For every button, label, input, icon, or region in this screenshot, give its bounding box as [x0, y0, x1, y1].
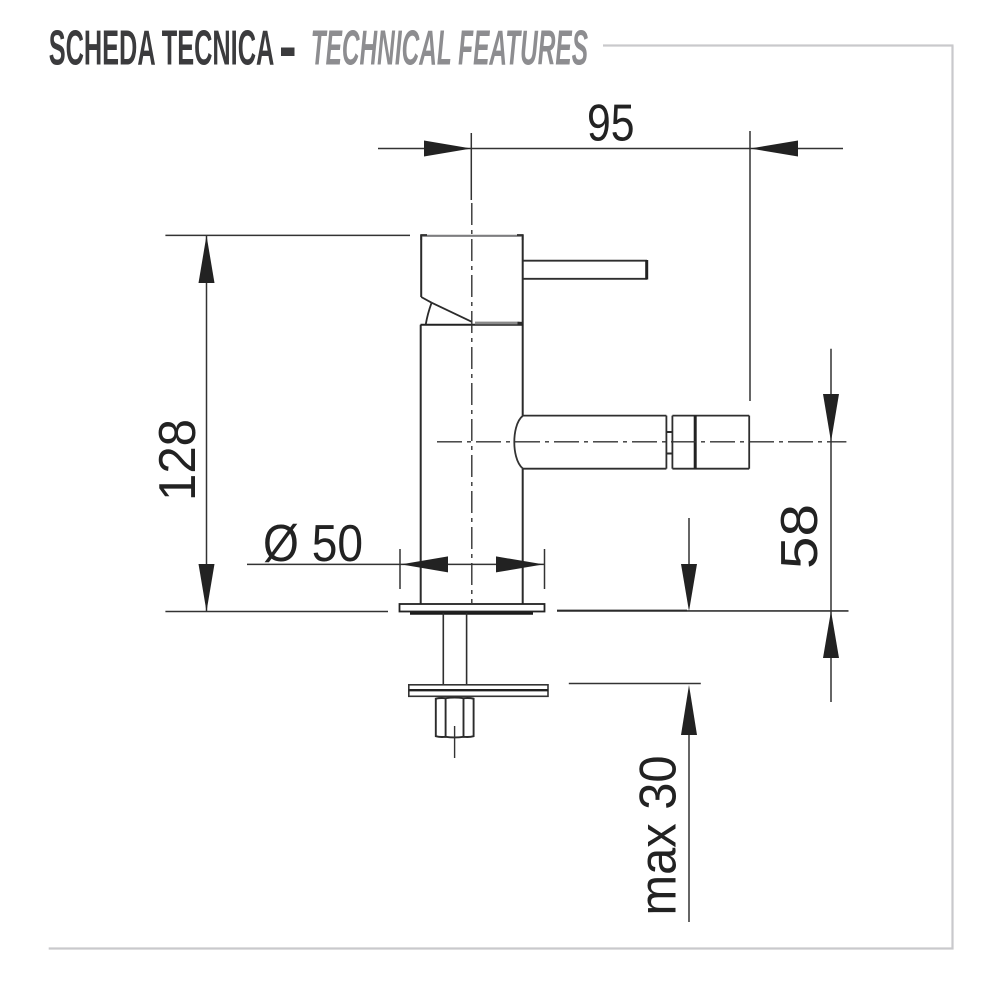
svg-text:128: 128	[148, 419, 206, 501]
svg-text:max 30: max 30	[629, 756, 687, 916]
svg-text:TECHNICAL FEATURES: TECHNICAL FEATURES	[311, 21, 588, 75]
svg-text:95: 95	[587, 93, 635, 151]
svg-text:Ø 50: Ø 50	[263, 514, 363, 572]
svg-text:SCHEDA TECNICA: SCHEDA TECNICA	[49, 21, 275, 75]
svg-text:58: 58	[770, 504, 828, 569]
